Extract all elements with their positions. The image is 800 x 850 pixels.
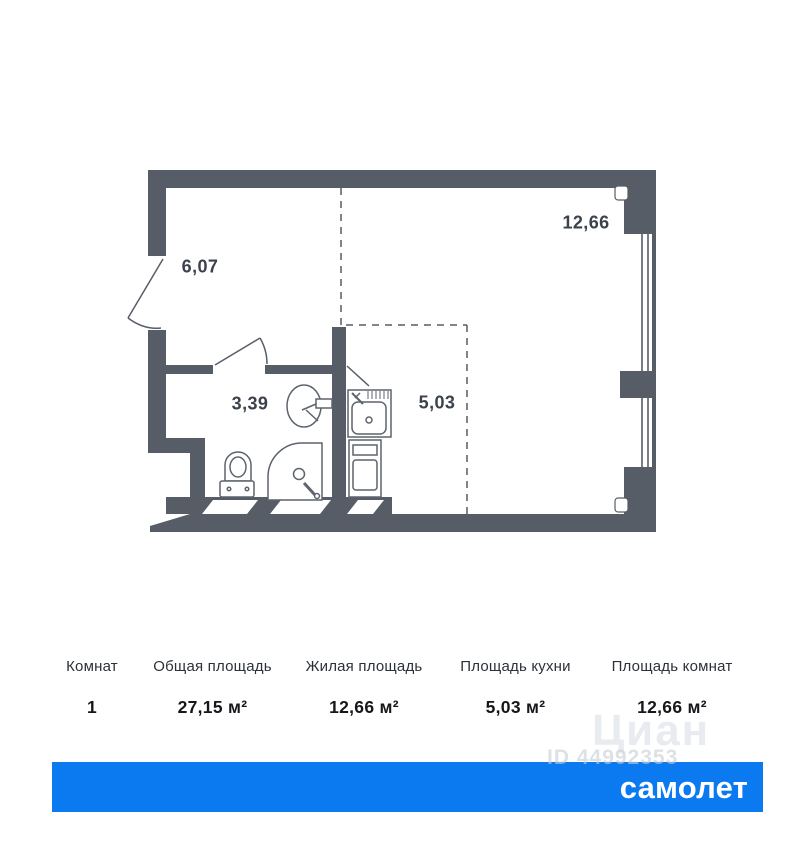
column-header: Площадь кухни <box>441 658 591 675</box>
shower-icon <box>268 443 322 500</box>
stove-icon <box>349 440 381 497</box>
room-area-label-bathroom: 3,39 <box>232 394 269 415</box>
column-header: Жилая площадь <box>289 658 439 675</box>
column-value: 27,15 м² <box>138 697 288 718</box>
kitchen-sink-icon <box>348 390 391 437</box>
room-area-label-hallway: 6,07 <box>182 257 219 278</box>
floorplan-card: 6,07 12,66 3,39 5,03 Комнат 1 Общая площ… <box>0 0 800 850</box>
washbasin-icon <box>287 385 332 427</box>
wall-notches <box>202 500 384 514</box>
column-header: Площадь комнат <box>592 658 752 675</box>
room-area-label-kitchen: 5,03 <box>419 393 456 414</box>
corner-notch-bottom <box>615 498 628 512</box>
column-value: 1 <box>48 697 136 718</box>
floor-plan <box>0 0 800 600</box>
table-column-total-area: Общая площадь 27,15 м² <box>138 658 288 718</box>
window-upper <box>642 234 656 371</box>
window-lower <box>642 398 656 467</box>
entrance-door <box>128 259 163 328</box>
samolet-logo: самолет <box>620 772 763 803</box>
table-column-rooms: Комнат 1 <box>48 658 136 718</box>
column-value: 12,66 м² <box>289 697 439 718</box>
column-header: Общая площадь <box>138 658 288 675</box>
column-header: Комнат <box>48 658 136 675</box>
toilet-icon <box>220 452 254 497</box>
table-column-kitchen-area: Площадь кухни 5,03 м² <box>441 658 591 718</box>
column-value: 5,03 м² <box>441 697 591 718</box>
table-column-living-area: Жилая площадь 12,66 м² <box>289 658 439 718</box>
watermark-listing-id: ID 44992353 <box>547 746 678 770</box>
room-area-label-living-room: 12,66 <box>562 213 609 234</box>
corner-notch-top <box>615 186 628 200</box>
